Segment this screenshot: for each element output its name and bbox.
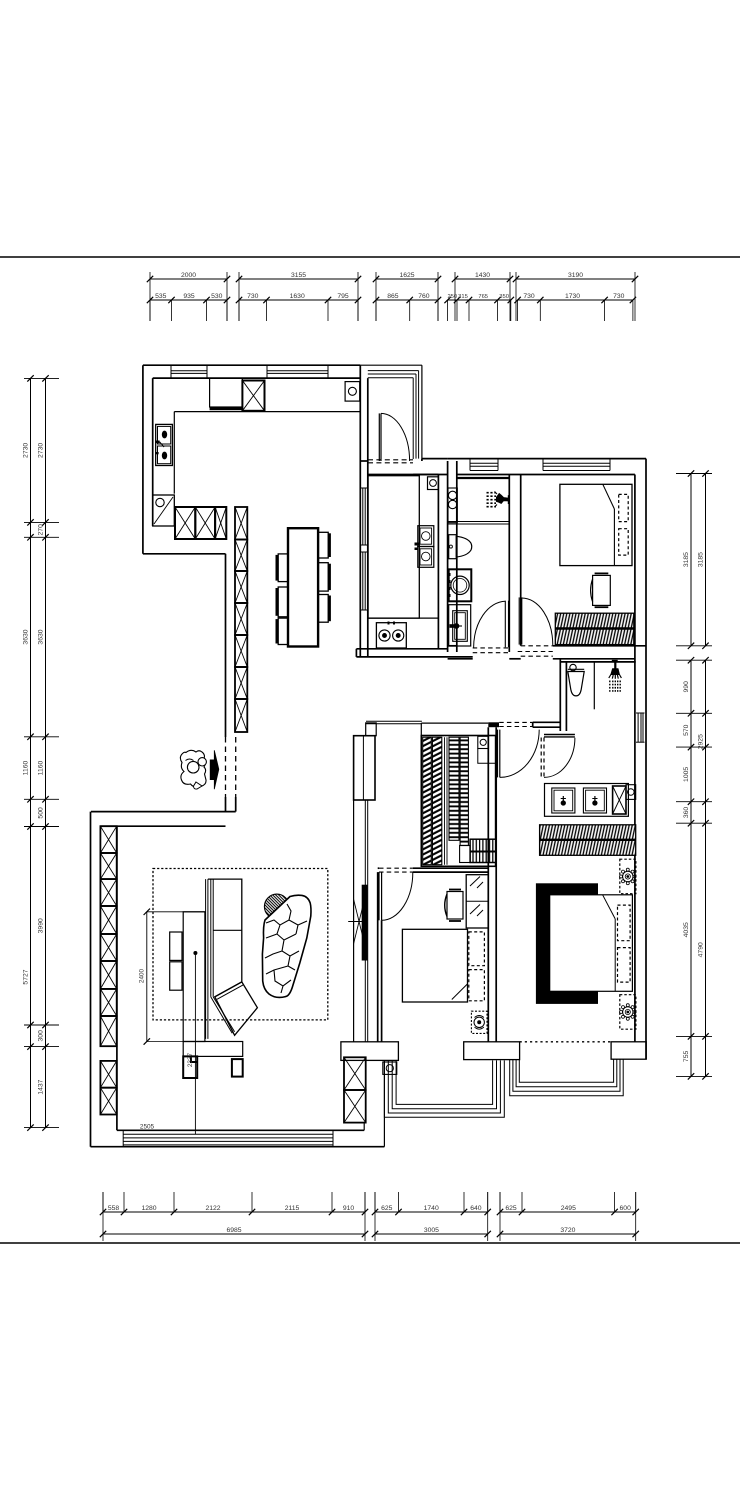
- svg-text:1160: 1160: [37, 760, 44, 775]
- svg-text:865: 865: [387, 293, 399, 300]
- svg-text:600: 600: [620, 1205, 632, 1212]
- svg-text:3720: 3720: [560, 1227, 575, 1234]
- svg-text:910: 910: [343, 1205, 355, 1212]
- svg-text:935: 935: [183, 293, 195, 300]
- svg-text:1730: 1730: [565, 293, 580, 300]
- svg-text:315: 315: [458, 294, 468, 300]
- svg-text:1280: 1280: [141, 1205, 156, 1212]
- svg-text:570: 570: [683, 724, 690, 736]
- svg-text:2505: 2505: [140, 1124, 155, 1131]
- svg-text:3005: 3005: [424, 1227, 439, 1234]
- svg-text:760: 760: [418, 293, 430, 300]
- svg-text:795: 795: [337, 293, 349, 300]
- svg-text:3190: 3190: [568, 272, 583, 279]
- svg-text:730: 730: [247, 293, 259, 300]
- svg-text:4035: 4035: [683, 922, 690, 937]
- svg-text:4790: 4790: [697, 942, 704, 957]
- svg-text:3630: 3630: [37, 629, 44, 644]
- svg-text:730: 730: [613, 293, 625, 300]
- svg-text:1430: 1430: [475, 272, 490, 279]
- svg-text:2115: 2115: [285, 1205, 300, 1212]
- svg-text:2400: 2400: [139, 968, 146, 983]
- svg-text:6985: 6985: [226, 1227, 241, 1234]
- svg-text:1740: 1740: [424, 1205, 439, 1212]
- svg-text:2730: 2730: [22, 443, 29, 458]
- svg-text:3185: 3185: [697, 552, 704, 567]
- svg-text:1630: 1630: [290, 293, 305, 300]
- svg-text:2000: 2000: [181, 272, 196, 279]
- svg-text:535: 535: [155, 293, 167, 300]
- svg-text:1005: 1005: [683, 767, 690, 782]
- svg-text:350: 350: [499, 294, 509, 300]
- svg-text:625: 625: [381, 1205, 393, 1212]
- svg-text:1437: 1437: [37, 1079, 44, 1094]
- svg-text:3185: 3185: [683, 552, 690, 567]
- svg-text:2337: 2337: [187, 1052, 194, 1067]
- svg-text:250: 250: [447, 294, 457, 300]
- svg-text:5727: 5727: [22, 969, 29, 984]
- svg-text:300: 300: [37, 1030, 44, 1042]
- svg-text:765: 765: [478, 294, 488, 300]
- svg-text:3155: 3155: [291, 272, 306, 279]
- svg-text:730: 730: [523, 293, 535, 300]
- svg-text:755: 755: [683, 1051, 690, 1063]
- svg-text:530: 530: [211, 293, 223, 300]
- svg-text:2730: 2730: [37, 443, 44, 458]
- svg-text:558: 558: [108, 1205, 120, 1212]
- svg-text:2925: 2925: [697, 734, 704, 749]
- svg-text:3990: 3990: [37, 918, 44, 933]
- svg-text:3630: 3630: [22, 629, 29, 644]
- svg-text:2495: 2495: [561, 1205, 576, 1212]
- svg-text:2122: 2122: [205, 1205, 220, 1212]
- svg-text:640: 640: [470, 1205, 482, 1212]
- svg-text:1160: 1160: [22, 760, 29, 775]
- svg-text:360: 360: [683, 807, 690, 819]
- svg-text:1625: 1625: [399, 272, 414, 279]
- svg-text:500: 500: [37, 807, 44, 819]
- svg-text:990: 990: [683, 681, 690, 693]
- svg-text:270: 270: [37, 524, 44, 536]
- svg-text:625: 625: [505, 1205, 517, 1212]
